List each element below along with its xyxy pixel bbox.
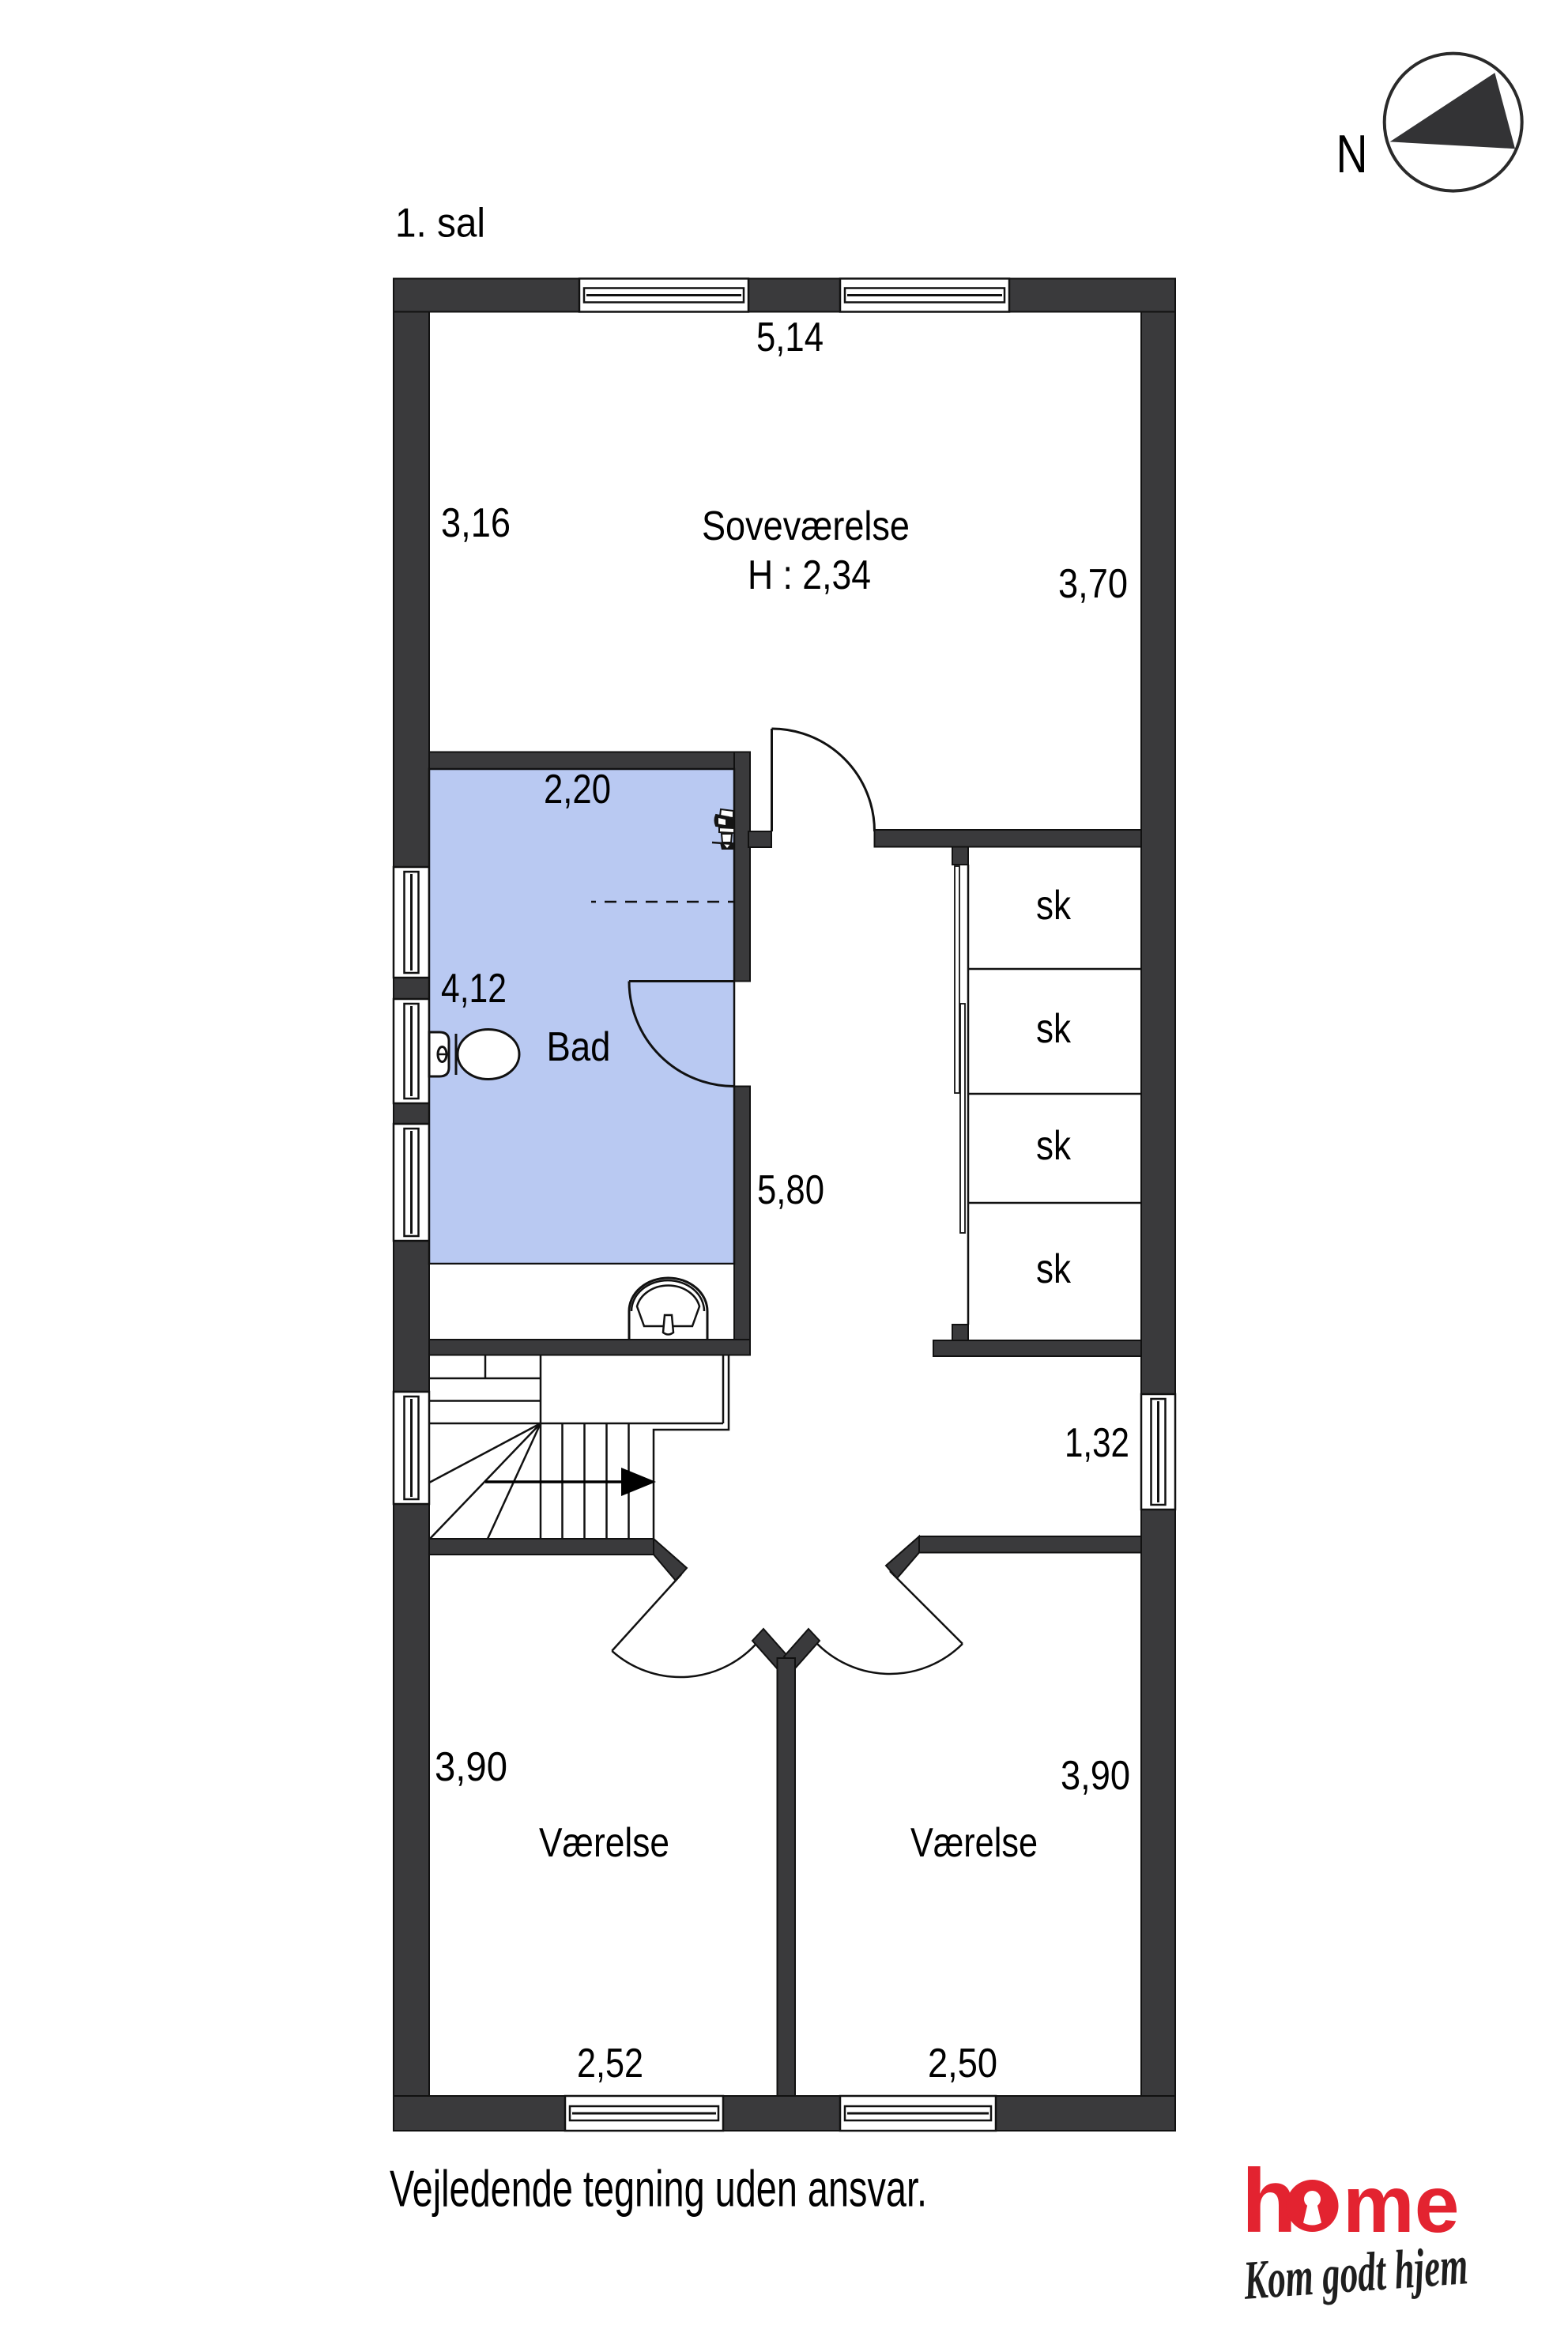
svg-text:H : 2,34: H : 2,34 [748, 552, 871, 598]
svg-text:sk: sk [1036, 1006, 1072, 1052]
svg-text:me: me [1343, 2159, 1459, 2249]
svg-text:2,52: 2,52 [577, 2041, 643, 2086]
svg-text:N: N [1336, 124, 1368, 184]
svg-text:Værelse: Værelse [539, 1820, 669, 1866]
svg-text:3,90: 3,90 [1061, 1753, 1130, 1799]
svg-text:Vejledende tegning uden ansvar: Vejledende tegning uden ansvar. [390, 2160, 927, 2218]
svg-text:Bad: Bad [547, 1024, 611, 1070]
svg-text:3,16: 3,16 [441, 500, 511, 546]
svg-text:Soveværelse: Soveværelse [702, 503, 910, 549]
svg-text:3,70: 3,70 [1058, 561, 1128, 607]
svg-text:1. sal: 1. sal [395, 201, 485, 247]
svg-text:3,90: 3,90 [435, 1744, 507, 1790]
svg-text:4,12: 4,12 [441, 966, 507, 1012]
svg-text:sk: sk [1036, 883, 1072, 929]
svg-text:5,14: 5,14 [756, 315, 824, 360]
svg-text:2,50: 2,50 [928, 2041, 997, 2086]
svg-text:sk: sk [1036, 1123, 1072, 1169]
svg-text:1,32: 1,32 [1065, 1420, 1129, 1466]
svg-text:Værelse: Værelse [910, 1820, 1038, 1866]
svg-text:5,80: 5,80 [757, 1167, 824, 1213]
svg-text:sk: sk [1036, 1246, 1072, 1292]
svg-text:2,20: 2,20 [544, 767, 611, 812]
